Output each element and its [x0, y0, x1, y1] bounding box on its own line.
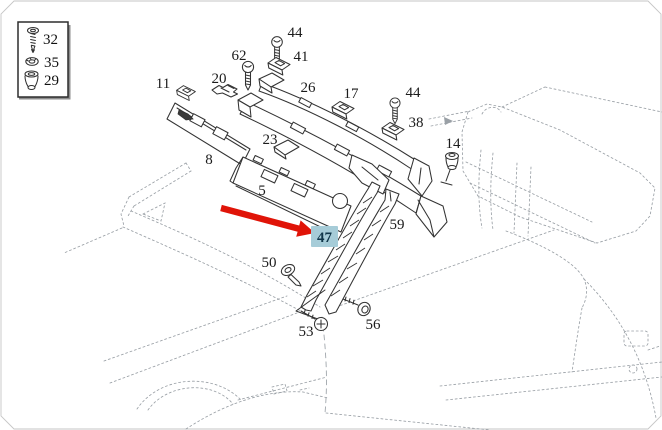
legend-label-29: 29: [44, 73, 59, 89]
part-62-screw: [242, 61, 253, 90]
part-41-clip: [268, 58, 290, 76]
part-label-26: 26: [301, 80, 317, 96]
part-label-47[interactable]: 47: [317, 230, 333, 246]
legend-label-35: 35: [44, 55, 59, 71]
legend-label-32: 32: [43, 32, 58, 48]
part-label-8: 8: [205, 152, 213, 168]
part-56-screw: [343, 297, 372, 318]
part-label-20: 20: [212, 71, 227, 87]
part-label-17: 17: [344, 86, 360, 102]
part-11-clip: [177, 86, 196, 101]
part-label-44-right: 44: [406, 85, 422, 101]
fastener-legend: 32 35 29: [18, 22, 70, 99]
part-5-lower-cowl-panel: [230, 155, 351, 233]
highlighted-part-label-47[interactable]: 47: [311, 226, 338, 247]
part-label-38: 38: [409, 115, 424, 131]
part-14-grommet: [441, 153, 459, 186]
part-label-23: 23: [263, 132, 278, 148]
band-23-end-cap: [416, 196, 447, 237]
part-label-53: 53: [299, 324, 314, 340]
part-label-41: 41: [294, 49, 309, 65]
part-label-50: 50: [262, 255, 277, 271]
part-label-59: 59: [390, 217, 405, 233]
wheel-arch-sketch: [137, 381, 242, 409]
part-label-62: 62: [232, 48, 247, 64]
part-label-14: 14: [446, 136, 462, 152]
part-23-bracket: [274, 140, 299, 159]
mirror-triangle-sketch: [143, 203, 165, 221]
door-edge-dashed: [322, 317, 326, 413]
part-label-56: 56: [366, 317, 382, 333]
part-label-11: 11: [156, 76, 170, 92]
parts-diagram-canvas: 32 35 29: [0, 0, 662, 430]
part-label-5: 5: [258, 183, 266, 199]
part-label-44-top: 44: [288, 25, 304, 41]
panel-5-hole: [333, 194, 348, 209]
part-50-rivet: [279, 262, 301, 286]
part-44-screw-right: [390, 98, 400, 124]
parts-diagram-page: 32 35 29: [0, 0, 662, 430]
part-38-clip: [382, 123, 404, 141]
header-dart-sketch: [444, 117, 453, 125]
